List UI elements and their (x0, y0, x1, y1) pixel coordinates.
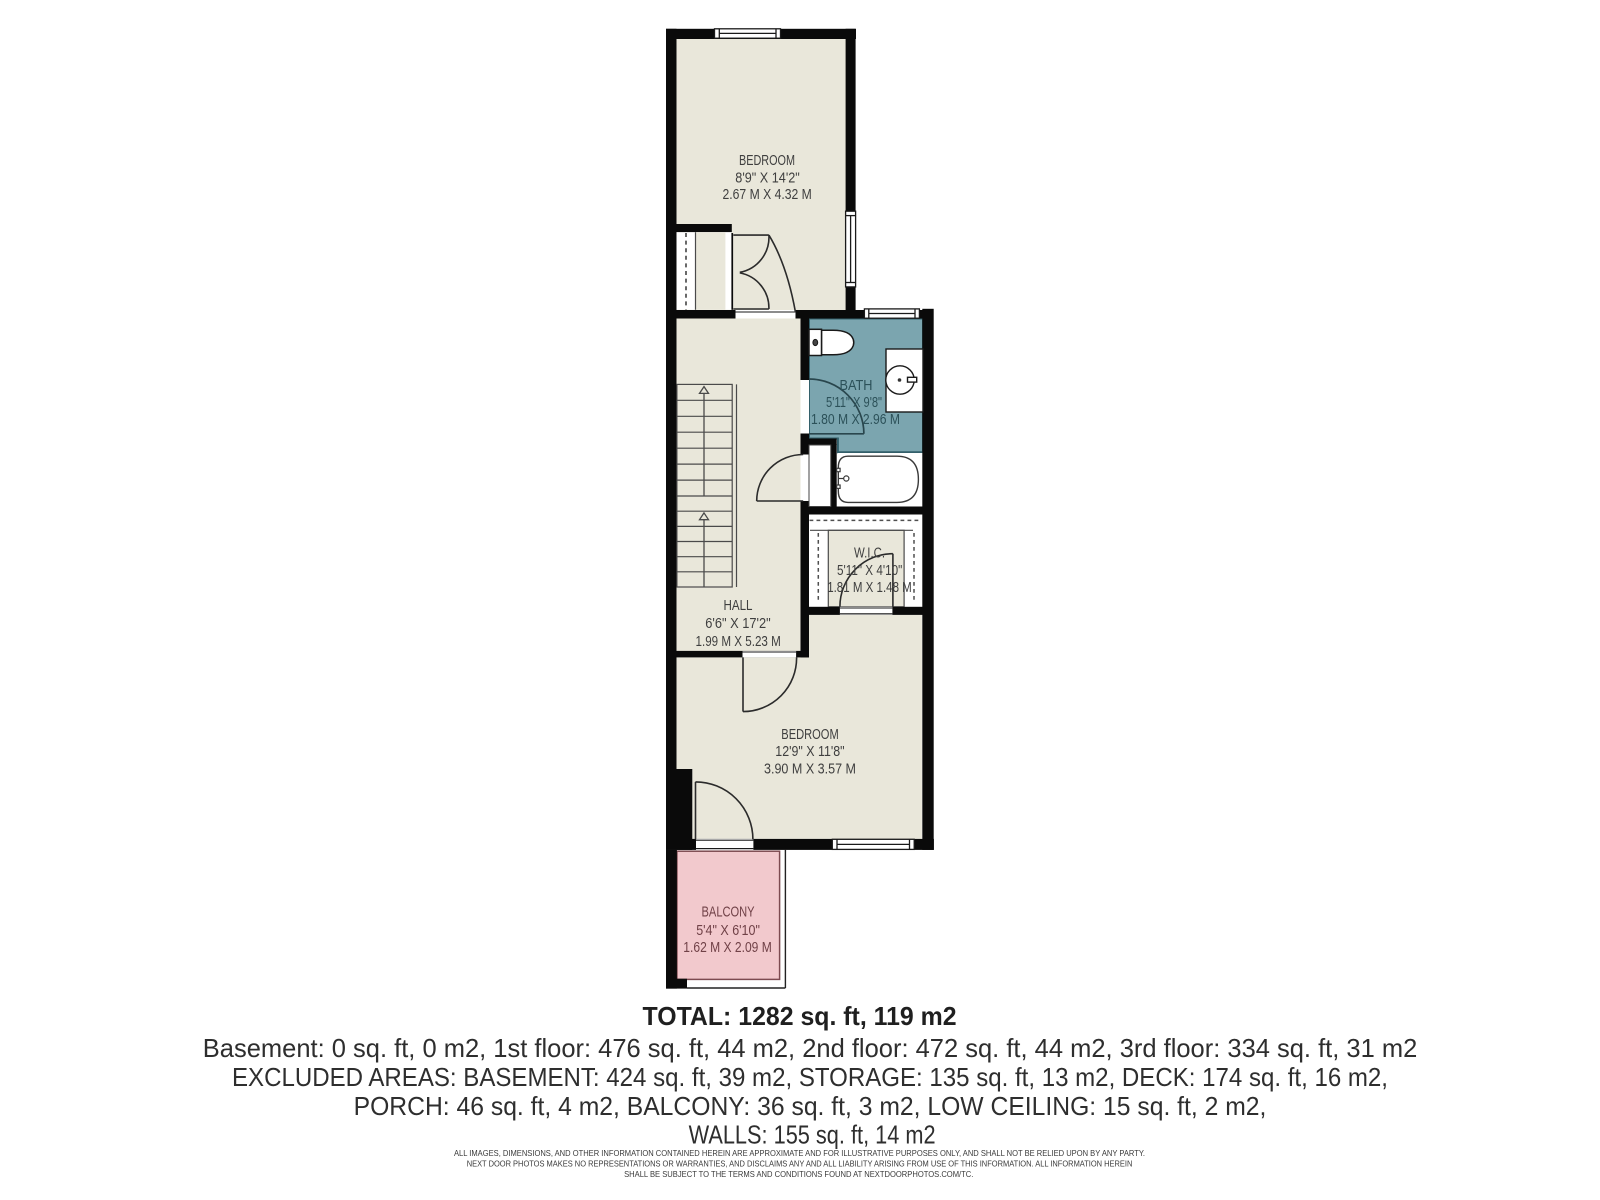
svg-text:BEDROOM: BEDROOM (781, 727, 838, 743)
svg-text:SHALL BE SUBJECT TO THE TERMS: SHALL BE SUBJECT TO THE TERMS AND CONDIT… (624, 1170, 973, 1179)
svg-text:3.90 M X 3.57 M: 3.90 M X 3.57 M (764, 761, 856, 777)
svg-text:PORCH: 46 sq. ft, 4 m2, BALCON: PORCH: 46 sq. ft, 4 m2, BALCONY: 36 sq. … (354, 1091, 1267, 1121)
svg-text:5'4" X 6'10": 5'4" X 6'10" (696, 923, 760, 939)
svg-text:HALL: HALL (724, 598, 753, 614)
svg-text:6'6" X 17'2": 6'6" X 17'2" (705, 616, 770, 632)
svg-text:12'9" X 11'8": 12'9" X 11'8" (775, 744, 844, 760)
svg-text:BATH: BATH (840, 378, 873, 394)
svg-text:1.62 M X 2.09 M: 1.62 M X 2.09 M (683, 940, 772, 956)
svg-text:2.67 M X 4.32 M: 2.67 M X 4.32 M (723, 187, 812, 203)
svg-text:WALLS: 155 sq. ft, 14 m2: WALLS: 155 sq. ft, 14 m2 (689, 1119, 936, 1149)
svg-text:8'9" X 14'2": 8'9" X 14'2" (735, 170, 800, 186)
svg-text:1.81 M X 1.48 M: 1.81 M X 1.48 M (827, 580, 912, 596)
svg-text:BEDROOM: BEDROOM (739, 153, 795, 169)
svg-text:W.I.C.: W.I.C. (854, 546, 885, 562)
svg-text:5'11" X 4'10": 5'11" X 4'10" (837, 563, 902, 579)
svg-text:1.80 M X 2.96 M: 1.80 M X 2.96 M (811, 412, 900, 428)
svg-text:Basement: 0 sq. ft, 0 m2, 1st: Basement: 0 sq. ft, 0 m2, 1st floor: 476… (203, 1033, 1418, 1063)
svg-text:NEXT DOOR PHOTOS MAKES NO REPR: NEXT DOOR PHOTOS MAKES NO REPRESENTATION… (467, 1160, 1133, 1169)
svg-text:ALL IMAGES, DIMENSIONS, AND OT: ALL IMAGES, DIMENSIONS, AND OTHER INFORM… (454, 1149, 1145, 1158)
svg-text:5'11" X 9'8": 5'11" X 9'8" (826, 395, 882, 411)
svg-text:TOTAL: 1282 sq. ft, 119 m2: TOTAL: 1282 sq. ft, 119 m2 (643, 1001, 957, 1031)
svg-text:1.99 M X 5.23 M: 1.99 M X 5.23 M (696, 634, 781, 650)
svg-text:BALCONY: BALCONY (702, 904, 755, 920)
svg-text:EXCLUDED AREAS: BASEMENT: 424: EXCLUDED AREAS: BASEMENT: 424 sq. ft, 39… (232, 1062, 1388, 1092)
